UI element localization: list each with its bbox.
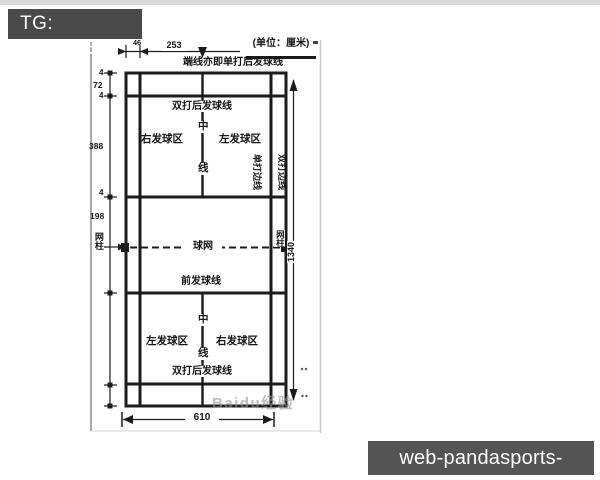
label-center-line-upper-char2: 线 [197,163,210,175]
label-center-line-lower-char1: 中 [197,314,210,326]
site-url-label: web-pandasports-go.com [368,441,594,475]
label-left-service-court-lower: 左发球区 [146,336,188,348]
label-end-line: 端线亦即单打后发球线 [176,57,290,68]
dim-46: 46 [129,39,145,47]
dim-line-width-top: 4 [99,69,103,78]
label-center-line-upper-char1: 中 [197,121,210,133]
label-right-service-court-lower: 右发球区 [216,336,258,348]
dim-198: 198 [90,212,104,221]
badminton-court-diagram [0,0,600,480]
scan-noise-dots [301,368,308,397]
label-doubles-long-service-upper: 双打后发球线 [165,101,239,112]
dim-72: 72 [93,81,102,90]
page: (单位：厘米) 端线亦即单打后发球线 46 253 双打后发球线 右发球区 左发… [0,0,600,480]
label-net-post-left: 网柱 [92,232,104,250]
dim-388: 388 [89,142,103,151]
baidu-watermark: Baidu经验 [212,392,294,413]
dim-253: 253 [161,41,187,51]
label-net-post-right: 网柱 [274,230,285,247]
label-left-service-court-upper: 左发球区 [219,134,261,146]
label-doubles-long-service-lower: 双打后发球线 [165,366,239,377]
tg-tag-label: TG: MYYJJPP [8,9,142,39]
dim-610: 610 [185,412,219,423]
label-doubles-sideline: 双打边线 [276,154,286,190]
label-singles-sideline: 单打边线 [251,154,261,190]
label-right-service-court-upper: 右发球区 [141,134,183,146]
label-net: 球网 [184,241,222,252]
dim-line-width-mid: 4 [99,92,103,101]
left-dimension-line [104,71,125,409]
label-center-line-lower-char2: 线 [197,348,210,360]
dim-line-width-low: 4 [99,189,103,198]
dim-1340: 1340 [287,241,297,263]
unit-note: (单位：厘米) [244,38,318,49]
label-short-service-line-lower: 前发球线 [176,276,226,287]
